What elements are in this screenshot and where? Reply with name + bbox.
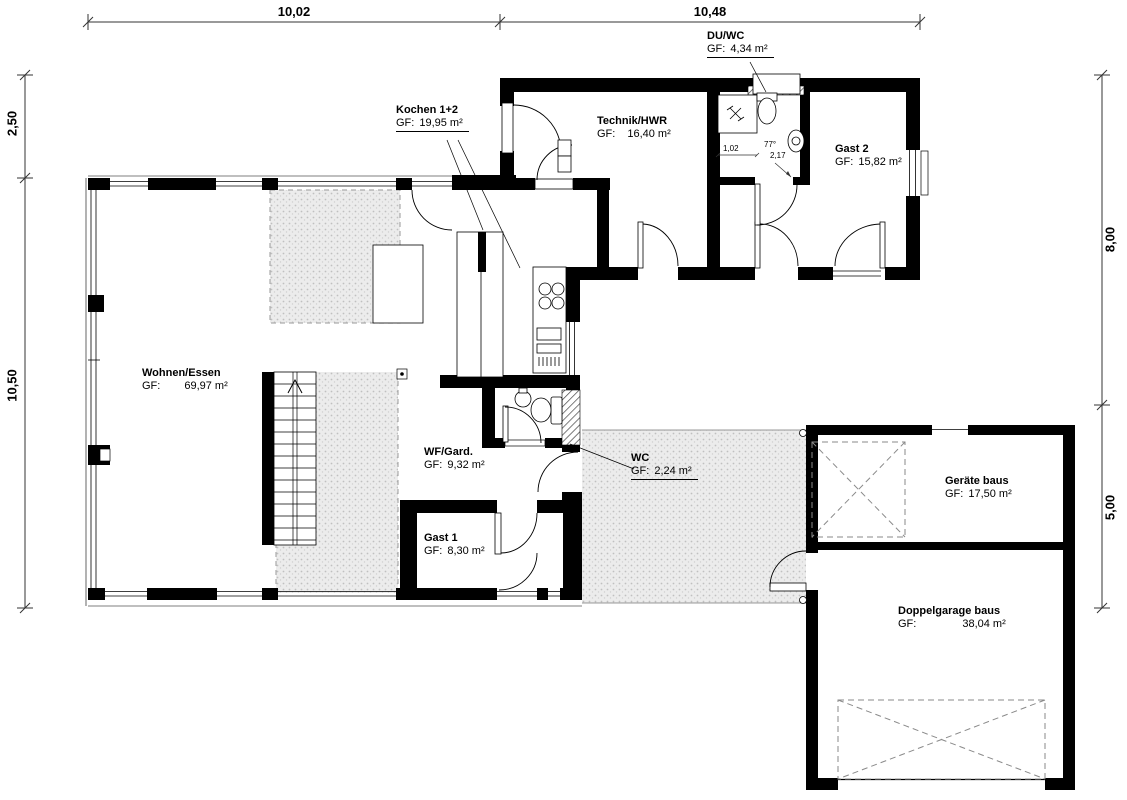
dim-door-angle: 77° xyxy=(764,140,776,149)
dim-door-width: 1,02 xyxy=(723,144,739,153)
label-gast1: Gast 1 GF:8,30 m² xyxy=(424,532,485,558)
label-duwc: DU/WC GF:4,34 m² xyxy=(707,30,774,58)
dim-right-lower: 5,00 xyxy=(1103,484,1118,532)
floor-plan: Kochen 1+2 GF:19,95 m² DU/WC GF:4,34 m² … xyxy=(0,0,1127,800)
shower xyxy=(718,95,757,133)
dim-top-left: 10,02 xyxy=(259,4,329,19)
staircase xyxy=(262,372,316,545)
wc-toilet xyxy=(551,397,562,424)
stipple-areas xyxy=(270,190,806,603)
label-kochen: Kochen 1+2 GF:19,95 m² xyxy=(396,104,469,132)
floor-plan-drawing xyxy=(0,0,1127,800)
dining-table xyxy=(373,245,423,323)
patio-door-leaf xyxy=(770,583,806,591)
label-technik: Technik/HWR GF:16,40 m² xyxy=(597,115,671,141)
terrace-door-arc xyxy=(412,190,452,230)
label-wfgard: WF/Gard. GF:9,32 m² xyxy=(424,446,485,472)
label-garage: Doppelgarage baus GF:38,04 m² xyxy=(898,605,1006,631)
dim-right-upper: 8,00 xyxy=(1103,216,1118,264)
dim-left-lower: 10,50 xyxy=(5,362,20,410)
label-wohnen: Wohnen/Essen GF:69,97 m² xyxy=(142,367,228,393)
dim-top-right: 10,48 xyxy=(675,4,745,19)
label-geraete: Geräte baus GF:17,50 m² xyxy=(945,475,1012,501)
label-wc: WC GF:2,24 m² xyxy=(631,452,698,480)
dim-left-upper: 2,50 xyxy=(5,100,20,148)
dim-door-clearance: 2,17 xyxy=(770,151,786,160)
entry-door-leaf xyxy=(502,103,513,153)
label-gast2: Gast 2 GF:15,82 m² xyxy=(835,143,902,169)
